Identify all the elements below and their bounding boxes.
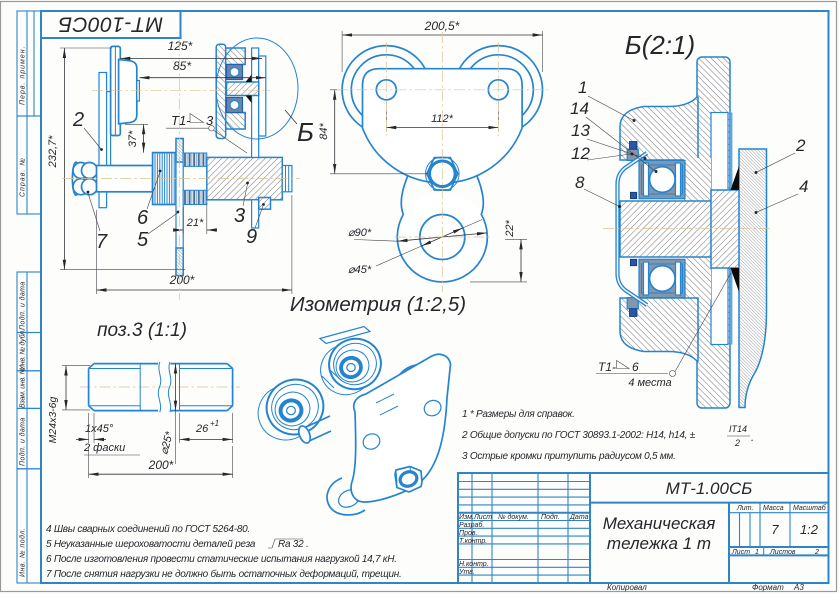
svg-text:84*: 84* xyxy=(318,123,330,140)
svg-text:1 * Размеры для справок.: 1 * Размеры для справок. xyxy=(462,409,575,420)
svg-text:200*: 200* xyxy=(148,458,174,472)
svg-text:Инв. № дубл.: Инв. № дубл. xyxy=(19,329,27,370)
svg-text:2: 2 xyxy=(814,549,819,556)
svg-text:21*: 21* xyxy=(186,217,204,229)
svg-text:Лит.: Лит. xyxy=(736,505,753,512)
svg-text:7: 7 xyxy=(771,522,779,537)
svg-text:Лист: Лист xyxy=(473,514,492,521)
svg-text:13: 13 xyxy=(571,121,590,140)
svg-text:9: 9 xyxy=(246,226,257,248)
svg-text:4 Швы сварных соединений по ГО: 4 Швы сварных соединений по ГОСТ 5264-80… xyxy=(46,524,250,535)
svg-text:2: 2 xyxy=(734,438,740,448)
svg-text:2 фаски: 2 фаски xyxy=(83,442,125,454)
svg-text:Механическая: Механическая xyxy=(603,514,716,533)
svg-text:8: 8 xyxy=(575,173,585,192)
svg-text:37*: 37* xyxy=(127,130,139,147)
svg-text:7: 7 xyxy=(96,231,108,253)
svg-text:2: 2 xyxy=(72,109,84,131)
svg-text:2: 2 xyxy=(795,136,806,155)
svg-text:Масштаб: Масштаб xyxy=(793,504,827,512)
svg-text:Подп. и дата: Подп. и дата xyxy=(19,281,27,330)
svg-text:Перв. примен.: Перв. примен. xyxy=(20,45,27,105)
svg-text:1: 1 xyxy=(578,78,587,97)
svg-text:200*: 200* xyxy=(169,273,195,287)
svg-text:Лист: Лист xyxy=(731,549,750,556)
svg-text:5 Неуказанные шероховатости де: 5 Неуказанные шероховатости деталей реза xyxy=(46,539,256,550)
svg-text:3: 3 xyxy=(234,205,245,227)
svg-text:Подп.: Подп. xyxy=(541,513,560,521)
svg-text:.: . xyxy=(751,432,754,444)
svg-text:Н.контр.: Н.контр. xyxy=(459,561,489,568)
svg-text:6: 6 xyxy=(137,207,149,229)
svg-text:Масса: Масса xyxy=(763,505,784,512)
svg-text:IT14: IT14 xyxy=(729,424,747,434)
svg-text:7 После снятия нагрузки не дол: 7 После снятия нагрузки не должно быть о… xyxy=(46,568,402,580)
svg-text:Б(2:1): Б(2:1) xyxy=(625,30,695,60)
svg-text:Утв.: Утв. xyxy=(458,569,475,576)
svg-text:№ докум.: № докум. xyxy=(498,513,529,521)
svg-text:22*: 22* xyxy=(504,220,516,238)
svg-text:125*: 125* xyxy=(168,39,193,53)
svg-text:Инв. № подл.: Инв. № подл. xyxy=(19,528,27,577)
svg-text:Изм.: Изм. xyxy=(459,514,474,521)
svg-text:А3: А3 xyxy=(793,583,804,592)
svg-text:МТ-1.00СБ: МТ-1.00СБ xyxy=(666,479,753,498)
svg-text:Пров.: Пров. xyxy=(459,530,478,537)
svg-text:4 места: 4 места xyxy=(628,377,671,389)
svg-text:Справ. №: Справ. № xyxy=(20,157,27,197)
svg-text:1х45°: 1х45° xyxy=(85,423,114,435)
svg-text:6: 6 xyxy=(632,360,639,374)
svg-text:Б: Б xyxy=(297,117,314,147)
svg-text:Изометрия (1:2,5): Изометрия (1:2,5) xyxy=(290,293,466,316)
svg-text:Т1-: Т1- xyxy=(171,113,191,128)
svg-text:Копировал: Копировал xyxy=(607,583,647,592)
svg-text:26: 26 xyxy=(195,423,209,435)
svg-text:232,7*: 232,7* xyxy=(47,135,59,169)
svg-text:Т.контр.: Т.контр. xyxy=(459,538,487,545)
svg-text:М24х3-6g: М24х3-6g xyxy=(47,397,59,444)
svg-text:3 Острые кромки притупить ради: 3 Острые кромки притупить радиусом 0,5 м… xyxy=(462,451,676,462)
svg-text:Листов: Листов xyxy=(769,549,796,556)
svg-text:Взам. инв. №: Взам. инв. № xyxy=(20,366,27,408)
svg-text:6 После изготовления провести: 6 После изготовления провести статически… xyxy=(46,554,397,565)
svg-text:5: 5 xyxy=(137,229,149,251)
svg-text:МТ-100СБ: МТ-100СБ xyxy=(58,13,163,36)
svg-text:тележка 1 т: тележка 1 т xyxy=(607,534,711,553)
svg-text:Подп. и дата: Подп. и дата xyxy=(19,417,27,466)
svg-text:Ra 32 .: Ra 32 . xyxy=(278,539,309,550)
svg-text:+1: +1 xyxy=(210,419,219,428)
svg-text:Формат: Формат xyxy=(752,583,784,592)
svg-text:1:2: 1:2 xyxy=(800,522,819,537)
svg-text:⌀45*: ⌀45* xyxy=(348,264,372,276)
svg-text:Дата: Дата xyxy=(569,514,589,521)
svg-text:4: 4 xyxy=(799,177,808,196)
svg-text:200,5*: 200,5* xyxy=(424,19,460,33)
svg-text:Разраб.: Разраб. xyxy=(459,521,484,529)
svg-text:14: 14 xyxy=(570,99,589,118)
svg-text:поз.3 (1:1): поз.3 (1:1) xyxy=(97,320,187,341)
svg-text:Т1-: Т1- xyxy=(598,360,616,374)
svg-text:1: 1 xyxy=(755,549,759,556)
svg-text:⌀90*: ⌀90* xyxy=(348,227,372,239)
svg-text:2 Общие допуски по ГОСТ 30893.: 2 Общие допуски по ГОСТ 30893.1-2002: Н1… xyxy=(461,429,696,441)
svg-text:85*: 85* xyxy=(173,59,191,73)
